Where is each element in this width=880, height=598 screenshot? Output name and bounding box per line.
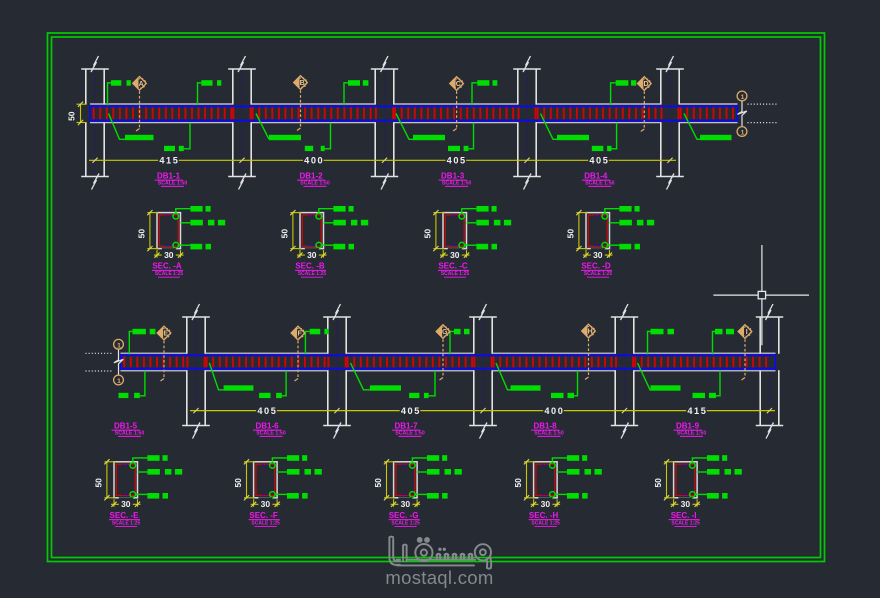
svg-text:F: F bbox=[298, 331, 303, 338]
svg-text:SEC. -E: SEC. -E bbox=[110, 511, 140, 520]
svg-text:30: 30 bbox=[307, 250, 317, 260]
svg-text:SCALE 1:50: SCALE 1:50 bbox=[256, 431, 286, 437]
svg-text:405: 405 bbox=[447, 156, 467, 166]
svg-text:50: 50 bbox=[513, 478, 523, 488]
svg-text:G: G bbox=[442, 329, 448, 336]
svg-text:415: 415 bbox=[687, 406, 707, 416]
svg-text:SCALE 1:25: SCALE 1:25 bbox=[531, 520, 560, 526]
svg-text:SCALE 1:50: SCALE 1:50 bbox=[158, 181, 188, 187]
svg-text:B: B bbox=[300, 80, 305, 87]
svg-text:DB1-3: DB1-3 bbox=[441, 171, 465, 180]
svg-text:SCALE 1:25: SCALE 1:25 bbox=[251, 520, 280, 526]
svg-text:30: 30 bbox=[450, 250, 460, 260]
svg-text:SCALE 1:50: SCALE 1:50 bbox=[677, 431, 707, 437]
svg-text:SEC. -G: SEC. -G bbox=[389, 511, 419, 520]
svg-text:D: D bbox=[643, 81, 648, 88]
svg-text:SCALE 1:50: SCALE 1:50 bbox=[534, 431, 564, 437]
svg-text:SEC. -F: SEC. -F bbox=[249, 511, 278, 520]
svg-text:DB1-5: DB1-5 bbox=[114, 421, 138, 430]
svg-text:1: 1 bbox=[741, 130, 745, 137]
svg-text:SCALE 1:25: SCALE 1:25 bbox=[441, 271, 470, 277]
svg-text:SEC. -C: SEC. -C bbox=[438, 262, 468, 271]
svg-text:415: 415 bbox=[159, 156, 179, 166]
svg-text:30: 30 bbox=[681, 499, 691, 509]
svg-text:SCALE 1:50: SCALE 1:50 bbox=[442, 181, 472, 187]
svg-text:DB1-6: DB1-6 bbox=[255, 421, 279, 430]
svg-text:400: 400 bbox=[304, 156, 324, 166]
svg-text:E: E bbox=[163, 331, 168, 338]
svg-text:SCALE 1:50: SCALE 1:50 bbox=[395, 431, 425, 437]
svg-text:1: 1 bbox=[741, 94, 745, 101]
svg-text:50: 50 bbox=[67, 111, 77, 121]
svg-text:1: 1 bbox=[117, 378, 121, 385]
svg-text:I: I bbox=[746, 329, 748, 336]
svg-text:H: H bbox=[588, 329, 593, 336]
svg-text:400: 400 bbox=[544, 406, 564, 416]
svg-text:DB1-7: DB1-7 bbox=[394, 421, 418, 430]
svg-text:DB1-8: DB1-8 bbox=[533, 421, 557, 430]
svg-text:405: 405 bbox=[401, 406, 421, 416]
svg-text:SCALE 1:25: SCALE 1:25 bbox=[155, 271, 184, 277]
svg-text:30: 30 bbox=[121, 499, 131, 509]
svg-text:mostaql.com: mostaql.com bbox=[385, 567, 493, 588]
svg-text:SCALE 1:25: SCALE 1:25 bbox=[671, 520, 700, 526]
svg-text:SCALE 1:25: SCALE 1:25 bbox=[298, 271, 327, 277]
svg-text:30: 30 bbox=[401, 499, 411, 509]
svg-text:405: 405 bbox=[589, 156, 609, 166]
svg-text:50: 50 bbox=[653, 478, 663, 488]
svg-text:50: 50 bbox=[280, 229, 290, 239]
svg-text:DB1-4: DB1-4 bbox=[584, 171, 608, 180]
svg-text:SCALE 1:25: SCALE 1:25 bbox=[391, 520, 420, 526]
svg-text:SEC. -H: SEC. -H bbox=[529, 511, 559, 520]
svg-text:DB1-9: DB1-9 bbox=[676, 421, 700, 430]
svg-text:SEC. -A: SEC. -A bbox=[152, 262, 182, 271]
svg-text:30: 30 bbox=[593, 250, 603, 260]
svg-text:30: 30 bbox=[541, 499, 551, 509]
svg-text:30: 30 bbox=[164, 250, 174, 260]
svg-text:SCALE 1:50: SCALE 1:50 bbox=[300, 181, 330, 187]
svg-text:1: 1 bbox=[117, 342, 121, 349]
svg-text:405: 405 bbox=[257, 406, 277, 416]
svg-text:50: 50 bbox=[423, 229, 433, 239]
svg-text:DB1-1: DB1-1 bbox=[157, 171, 181, 180]
svg-text:SEC. -D: SEC. -D bbox=[581, 262, 611, 271]
svg-text:SEC. -I: SEC. -I bbox=[671, 511, 697, 520]
svg-text:SCALE 1:25: SCALE 1:25 bbox=[112, 520, 141, 526]
svg-text:50: 50 bbox=[94, 478, 104, 488]
svg-text:SCALE 1:50: SCALE 1:50 bbox=[585, 181, 615, 187]
svg-text:SEC. -B: SEC. -B bbox=[295, 262, 325, 271]
svg-text:DB1-2: DB1-2 bbox=[299, 171, 323, 180]
svg-text:A: A bbox=[139, 81, 144, 88]
svg-text:SCALE 1:25: SCALE 1:25 bbox=[584, 271, 613, 277]
svg-text:SCALE 1:50: SCALE 1:50 bbox=[115, 431, 145, 437]
svg-text:30: 30 bbox=[261, 499, 271, 509]
svg-text:50: 50 bbox=[233, 478, 243, 488]
svg-text:50: 50 bbox=[566, 229, 576, 239]
svg-text:50: 50 bbox=[373, 478, 383, 488]
svg-text:C: C bbox=[456, 81, 461, 88]
svg-text:50: 50 bbox=[137, 229, 147, 239]
